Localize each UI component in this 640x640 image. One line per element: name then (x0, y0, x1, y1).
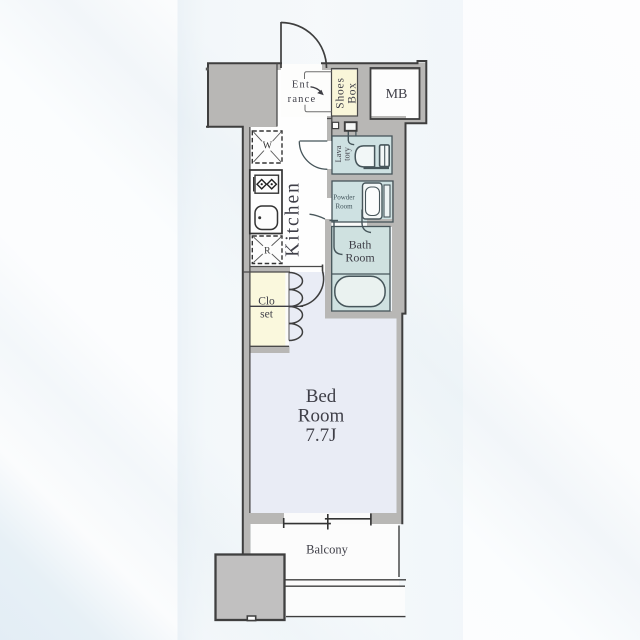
svg-text:Clo: Clo (258, 296, 275, 308)
svg-text:W: W (263, 141, 273, 152)
svg-text:MB: MB (386, 87, 408, 102)
svg-text:Kitchen: Kitchen (283, 181, 304, 257)
svg-text:Bath: Bath (349, 238, 372, 252)
svg-text:Room: Room (298, 406, 345, 427)
svg-text:Powder: Powder (333, 194, 355, 202)
svg-text:Bed: Bed (306, 386, 337, 407)
svg-text:7.7J: 7.7J (305, 425, 336, 446)
svg-text:Ent: Ent (292, 80, 310, 91)
svg-text:Balcony: Balcony (306, 543, 348, 557)
svg-text:Room: Room (335, 203, 353, 211)
svg-text:Shoes: Shoes (335, 77, 347, 108)
svg-text:R: R (264, 247, 271, 257)
svg-text:Box: Box (347, 82, 359, 104)
svg-text:Room: Room (345, 251, 375, 265)
svg-text:tory: tory (342, 146, 352, 160)
svg-text:rance: rance (288, 94, 317, 105)
svg-text:set: set (260, 309, 274, 321)
